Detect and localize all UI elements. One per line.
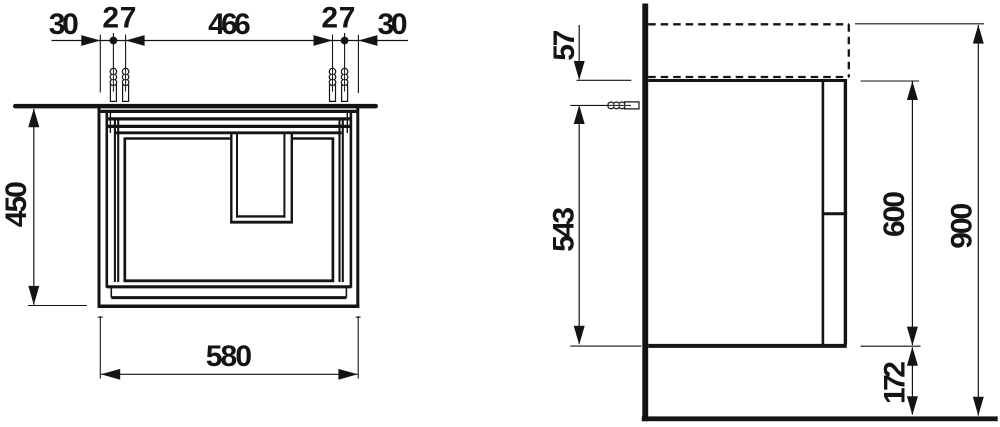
svg-text:900: 900 — [946, 203, 979, 249]
svg-text:580: 580 — [206, 340, 252, 373]
svg-text:27: 27 — [321, 2, 355, 35]
svg-text:172: 172 — [878, 361, 911, 404]
svg-text:30: 30 — [378, 8, 408, 41]
svg-text:30: 30 — [49, 8, 79, 41]
svg-text:57: 57 — [548, 30, 581, 61]
svg-text:600: 600 — [878, 191, 911, 237]
svg-text:543: 543 — [547, 207, 580, 252]
svg-text:27: 27 — [102, 2, 136, 35]
svg-text:450: 450 — [0, 181, 33, 227]
svg-text:466: 466 — [208, 8, 251, 41]
